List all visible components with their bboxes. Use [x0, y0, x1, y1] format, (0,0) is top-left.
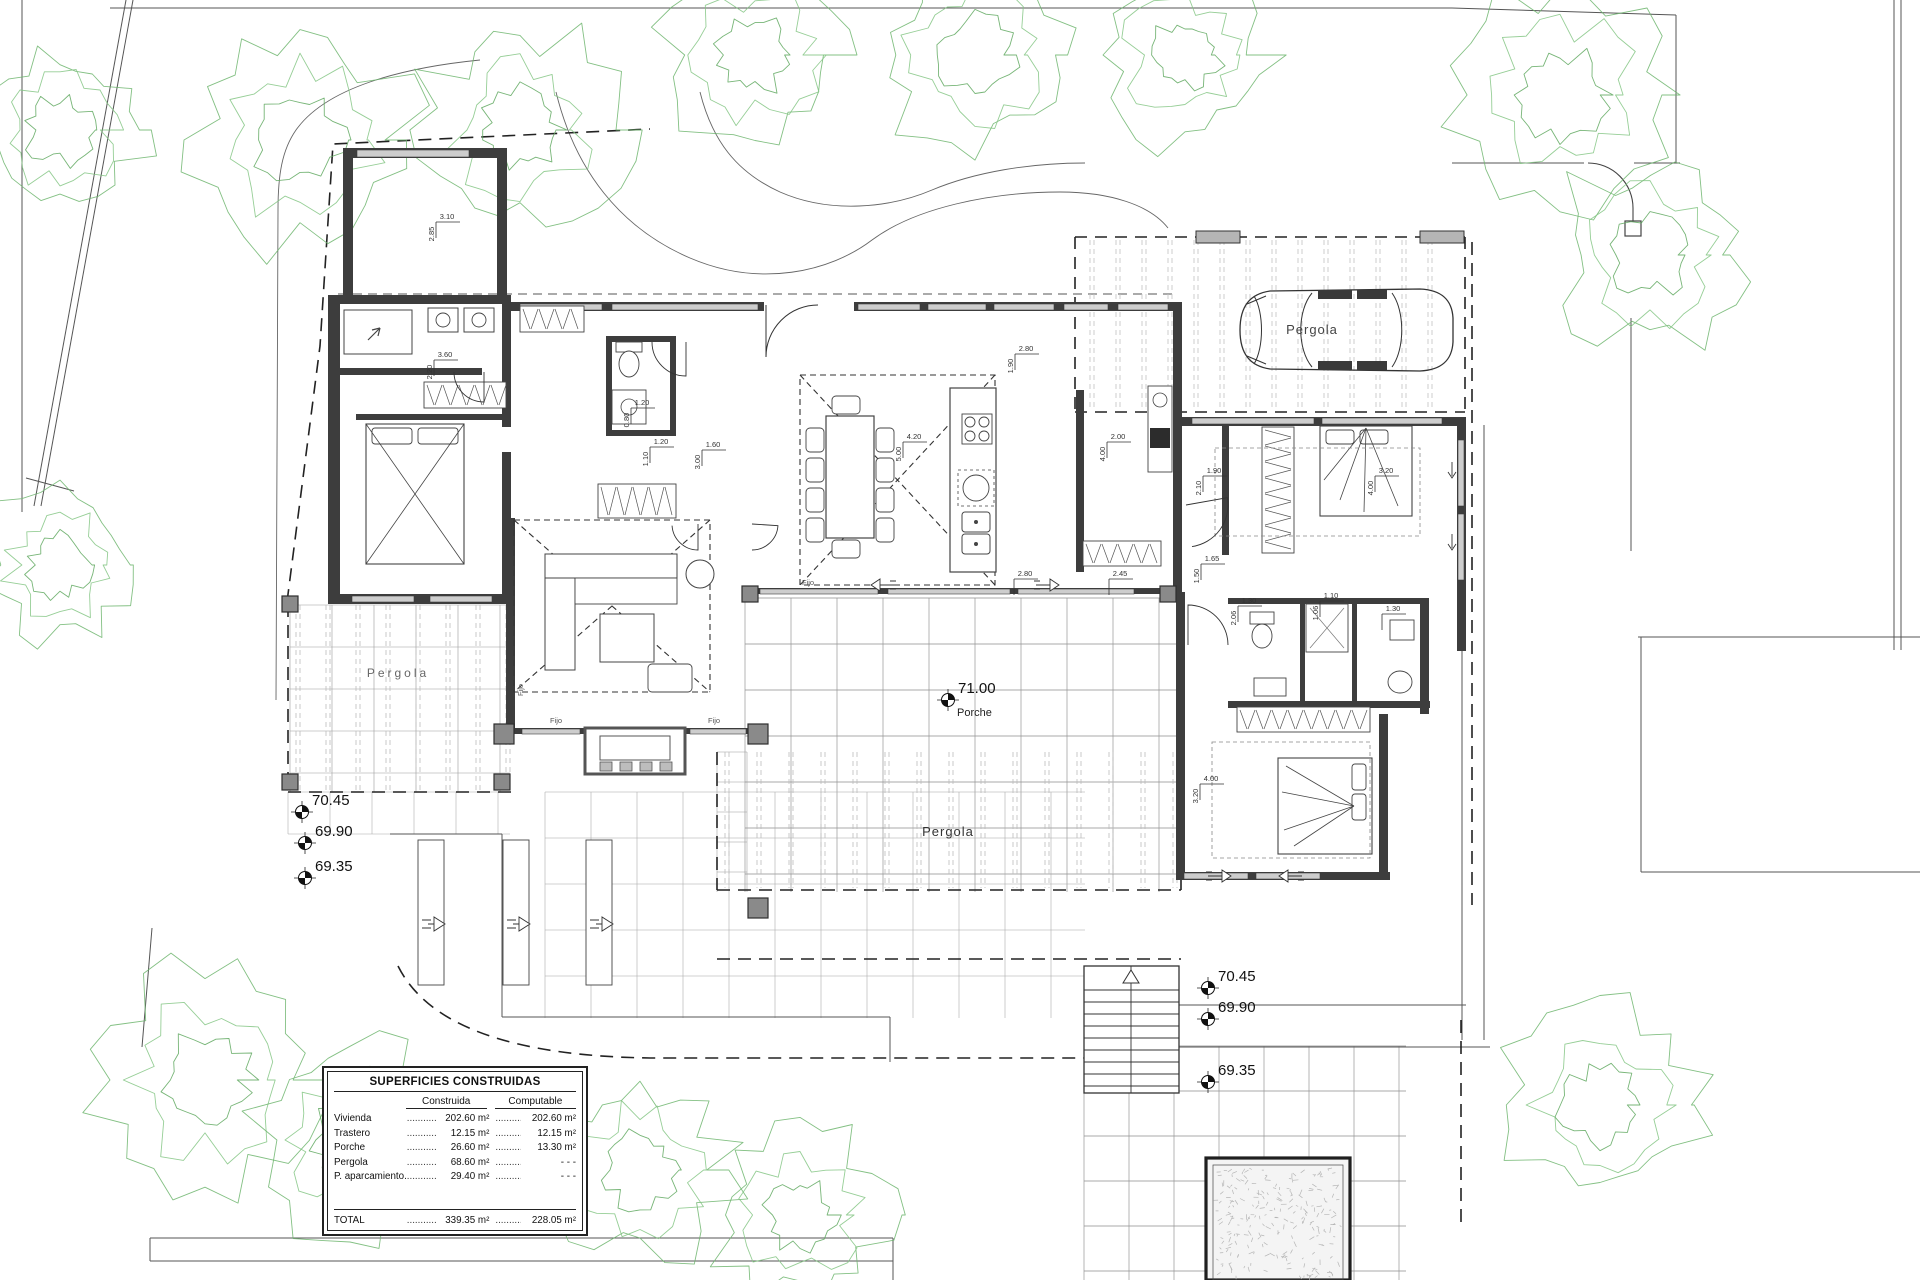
leader-dots: ............	[407, 1214, 437, 1229]
toilet	[1252, 624, 1272, 648]
sofa-side	[545, 578, 575, 670]
carport-pergola	[1075, 231, 1465, 412]
dimension-label: 2.80	[1018, 569, 1033, 578]
gate-swing	[1588, 163, 1633, 221]
table-row: Pergola............68.60 m²............-…	[334, 1156, 576, 1171]
dimension-label: 1.30	[1242, 596, 1257, 605]
fireplace-inner	[600, 736, 670, 760]
tree-sketch	[254, 98, 351, 181]
total-label: TOTAL	[334, 1214, 407, 1229]
wall	[1173, 302, 1182, 594]
wall	[1420, 598, 1429, 714]
table-cell: - - -	[521, 1156, 576, 1171]
column-post	[494, 724, 514, 744]
side-table	[686, 560, 714, 588]
tree-sketch	[230, 53, 385, 217]
door-swing	[1188, 605, 1228, 645]
tree-sketch	[25, 529, 95, 600]
dimension-label: 4.20	[907, 432, 922, 441]
dimension-label: 3.00	[693, 455, 702, 470]
dimension-label: 2.06	[1229, 611, 1238, 626]
dimension-label: 1.90	[1207, 466, 1222, 475]
sliding-door-arrow	[880, 581, 896, 589]
boundary-line	[142, 928, 152, 1047]
chair	[806, 488, 824, 512]
setback-dashed-line	[288, 604, 512, 792]
dimension-label: 1.50	[1192, 569, 1201, 584]
table-cell: Porche	[334, 1141, 407, 1156]
setback-dashed-line	[398, 966, 1084, 1058]
areas-table-title: SUPERFICIES CONSTRUIDAS	[334, 1074, 576, 1092]
window	[1118, 304, 1168, 310]
tree-sketch	[651, 0, 857, 145]
pillow	[1326, 430, 1354, 444]
dimension-label: 1.20	[635, 398, 650, 407]
wall	[497, 148, 507, 300]
boundary-line	[41, 0, 133, 506]
tree-sketch	[25, 95, 97, 169]
setback-dashed-line	[287, 129, 650, 602]
dimension-label: 2.20	[425, 365, 434, 380]
site-plan-sheet: PergolaPergolaPergolaFijoFijoFijoFijo70.…	[0, 0, 1920, 1280]
dimension-label: 1.10	[1324, 591, 1339, 600]
chair	[876, 458, 894, 482]
chair	[876, 488, 894, 512]
label-pergola-left: Pergola	[367, 666, 429, 680]
washer	[464, 308, 494, 332]
wall	[1176, 592, 1185, 880]
carport-post	[1420, 231, 1464, 243]
tree-sketch	[0, 46, 157, 201]
dimension-mark	[1201, 564, 1225, 580]
door-swing	[672, 524, 698, 550]
tree-sketch	[601, 1129, 681, 1212]
column-post	[282, 596, 298, 612]
window	[994, 304, 1054, 310]
dimension-label: 4.00	[1098, 447, 1107, 462]
table-cell: 29.40 m²	[436, 1170, 489, 1185]
wall	[328, 295, 511, 304]
wall	[1300, 598, 1305, 702]
sink-drain	[974, 542, 978, 546]
dimension-mark	[436, 222, 460, 238]
window	[928, 304, 986, 310]
fireplace-detail	[640, 762, 652, 771]
door-swing	[652, 342, 686, 376]
dimension-label: 3.10	[440, 212, 455, 221]
table-cell: ............	[407, 1156, 437, 1171]
table-cell: ............	[407, 1127, 437, 1142]
elevation-value: 71.00	[958, 680, 996, 697]
boundary-line	[26, 478, 74, 491]
table-cell: ............	[495, 1156, 521, 1171]
pool	[1206, 1158, 1350, 1280]
sink	[1390, 620, 1414, 640]
door-swing	[752, 524, 778, 550]
dimension-label: 3.20	[1191, 789, 1200, 804]
wardrobe	[1262, 427, 1294, 553]
table-cell: - - -	[521, 1170, 576, 1185]
wall	[343, 148, 353, 300]
car-detail	[1392, 293, 1402, 367]
dimension-mark	[903, 442, 927, 458]
pillow	[1352, 794, 1366, 820]
elevation-value: 70.45	[312, 792, 350, 809]
table-cell: ............	[495, 1127, 521, 1142]
dimension-label: 2.10	[1194, 481, 1203, 496]
elevation-value: 69.90	[1218, 999, 1256, 1016]
window	[612, 304, 758, 310]
tree-sketch	[1590, 181, 1719, 329]
tree-sketch	[1441, 0, 1680, 220]
garden-contour	[700, 92, 1085, 206]
tree-sketch	[890, 0, 1076, 160]
tree-sketch	[1514, 48, 1613, 144]
coffee-table	[600, 614, 654, 662]
window	[760, 589, 878, 594]
dimension-mark	[1107, 442, 1131, 458]
wardrobe	[1237, 707, 1370, 732]
window	[1458, 514, 1464, 580]
areas-table-total-row: TOTAL ............ 339.35 m² ...........…	[334, 1209, 576, 1229]
ramp	[418, 840, 444, 985]
table-cell: 202.60 m²	[436, 1112, 489, 1127]
window-arrow	[1448, 462, 1456, 478]
tree-sketch	[181, 30, 429, 265]
armchair	[648, 664, 692, 692]
table-row: Trastero............12.15 m²............…	[334, 1127, 576, 1142]
fireplace-detail	[600, 762, 612, 771]
dimension-label: 2.85	[427, 227, 436, 242]
tree-sketch	[901, 0, 1039, 128]
sliding-door-arrow	[1034, 581, 1050, 589]
pergola-slat-lines	[296, 605, 510, 790]
table-cell: 26.60 m²	[436, 1141, 489, 1156]
areas-table: SUPERFICIES CONSTRUIDAS Construida Compu…	[322, 1066, 588, 1236]
areas-table-inner: SUPERFICIES CONSTRUIDAS Construida Compu…	[327, 1071, 583, 1231]
dimension-label: 1.06	[1311, 606, 1320, 621]
chair	[832, 396, 860, 414]
car-window	[1357, 290, 1387, 299]
wall	[1222, 425, 1229, 555]
fireplace-detail	[620, 762, 632, 771]
window	[1458, 440, 1464, 506]
fixed-window-label: Fijo	[802, 578, 814, 587]
fireplace-detail	[660, 762, 672, 771]
col-header-computable: Computable	[495, 1096, 576, 1109]
table-cell: 13.30 m²	[521, 1141, 576, 1156]
table-cell: 202.60 m²	[521, 1112, 576, 1127]
table-cell: ............	[495, 1170, 521, 1185]
dimension-label: 1.65	[1205, 554, 1220, 563]
tree-sketch	[1501, 993, 1714, 1186]
toilet	[619, 351, 639, 377]
car-window	[1318, 290, 1352, 299]
wall	[1379, 714, 1388, 880]
column-post	[1160, 586, 1176, 602]
elevation-value: 70.45	[1218, 968, 1256, 985]
fixed-window-label: Fijo	[708, 716, 720, 725]
dimension-label: 5.00	[894, 447, 903, 462]
toilet-tank	[616, 342, 642, 352]
chair	[876, 428, 894, 452]
sliding-door-arrow	[1222, 870, 1231, 882]
dimension-label: 3.60	[438, 350, 453, 359]
tree-sketch	[83, 953, 324, 1203]
window	[690, 729, 746, 734]
door-swing	[1186, 498, 1228, 547]
table-row: Porche............26.60 m²............13…	[334, 1141, 576, 1156]
dimension-label: 1.30	[1386, 604, 1401, 613]
window	[352, 596, 414, 602]
chair	[832, 540, 860, 558]
tree-sketch	[410, 23, 642, 227]
sink-drain	[974, 520, 978, 524]
tree-sketch	[762, 1181, 841, 1254]
tree-sketch	[713, 18, 790, 93]
floor-plan-drawing: PergolaPergolaPergolaFijoFijoFijoFijo70.…	[0, 0, 1920, 1280]
sofa-back	[545, 554, 677, 578]
window	[1064, 304, 1108, 310]
trees-layer	[0, 0, 1751, 1280]
car-window	[1357, 361, 1387, 370]
elevation-value: 69.90	[315, 823, 353, 840]
column-post	[282, 774, 298, 790]
tree-sketch	[123, 1002, 275, 1164]
gate-post	[1625, 221, 1641, 236]
window	[1018, 589, 1134, 594]
laundry-counter	[344, 310, 412, 354]
dimension-label: 1.20	[654, 437, 669, 446]
wardrobe	[1083, 541, 1161, 566]
tree-sketch	[739, 1152, 865, 1270]
window	[522, 729, 580, 734]
pergola-slat-lines	[725, 752, 1177, 888]
table-cell: Vivienda	[334, 1112, 407, 1127]
tree-sketch	[1610, 212, 1688, 295]
dimension-mark	[650, 447, 674, 463]
table-cell: P. aparcamiento...	[334, 1170, 407, 1185]
dimension-label: 4.00	[1204, 774, 1219, 783]
areas-table-rows: Vivienda............202.60 m²...........…	[334, 1112, 576, 1206]
table-cell: ............	[407, 1170, 437, 1185]
table-cell: ............	[407, 1112, 437, 1127]
table-cell: ............	[495, 1141, 521, 1156]
wall	[606, 430, 676, 436]
tree-sketch	[1152, 25, 1226, 91]
sofa-seat	[575, 578, 677, 604]
table-row: P. aparcamiento...............29.40 m²..…	[334, 1170, 576, 1185]
tree-sketch	[688, 0, 827, 126]
table-cell: ............	[495, 1112, 521, 1127]
site-boundaries	[22, 0, 1920, 1280]
total-construida: 339.35 m²	[436, 1214, 489, 1229]
column-post	[748, 724, 768, 744]
dimension-label: 3.20	[1379, 466, 1394, 475]
tree-sketch	[1103, 0, 1286, 157]
wall	[1352, 598, 1357, 702]
dimension-mark	[702, 450, 726, 466]
sliding-door-arrow	[1279, 870, 1288, 882]
ramp	[586, 840, 612, 985]
window-arrow	[1448, 534, 1456, 550]
wall	[340, 368, 482, 375]
label-pergola-carport: Pergola	[1286, 322, 1338, 337]
wall	[328, 295, 340, 604]
column-post	[748, 898, 768, 918]
window	[1192, 418, 1314, 424]
wall	[606, 336, 676, 342]
tree-sketch	[447, 54, 592, 202]
window	[858, 304, 920, 310]
car-window	[1318, 361, 1352, 370]
tree-sketch	[1563, 162, 1751, 350]
table-cell: 68.60 m²	[436, 1156, 489, 1171]
table-cell: 12.15 m²	[521, 1127, 576, 1142]
column-post	[742, 586, 758, 602]
chair	[806, 518, 824, 542]
tree-sketch	[1555, 1063, 1640, 1150]
carport-post	[1196, 231, 1240, 243]
chair	[806, 458, 824, 482]
table-row: Vivienda............202.60 m²...........…	[334, 1112, 576, 1127]
carport-dashed-outline	[1075, 237, 1465, 412]
dimension-label: 0.80	[622, 413, 631, 428]
tile-grid	[290, 605, 510, 792]
elevation-value: 69.35	[1218, 1062, 1256, 1079]
areas-table-header: Construida Computable	[334, 1096, 576, 1109]
dimension-label: 4.00	[1366, 481, 1375, 496]
tree-sketch	[937, 9, 1020, 93]
elevation-value: 69.35	[315, 858, 353, 875]
chair	[806, 428, 824, 452]
oven	[1150, 428, 1170, 448]
tree-sketch	[161, 1034, 259, 1125]
table-cell: ............	[407, 1141, 437, 1156]
window	[430, 596, 492, 602]
wall	[606, 336, 612, 434]
dimension-label: 2.45	[1113, 569, 1128, 578]
tile-grid	[745, 598, 1180, 892]
tree-sketch	[1122, 0, 1242, 107]
col-header-construida: Construida	[406, 1096, 487, 1109]
toilet	[1388, 671, 1412, 693]
fixed-window-label: Fijo	[550, 716, 562, 725]
dining-table	[826, 416, 874, 538]
tile-grid	[717, 752, 747, 892]
table-cell: Trastero	[334, 1127, 407, 1142]
dimension-label: 1.60	[706, 440, 721, 449]
window	[1322, 418, 1442, 424]
washer	[428, 308, 458, 332]
garden-contour	[556, 92, 1168, 274]
toilet-tank	[1250, 612, 1274, 624]
vanity	[1254, 678, 1286, 696]
total-computable: 228.05 m²	[521, 1214, 576, 1229]
tree-sketch	[1526, 1041, 1676, 1173]
porche-label: Porche	[957, 707, 992, 719]
window	[357, 150, 469, 157]
label-pergola-bottom: Pergola	[922, 824, 974, 839]
pillow	[1352, 764, 1366, 790]
dimension-mark	[1015, 354, 1039, 370]
wall	[670, 336, 676, 434]
dimension-label: 2.00	[1111, 432, 1126, 441]
chair	[876, 518, 894, 542]
wall	[356, 414, 506, 420]
boundary-line	[34, 0, 126, 506]
leader-dots: ............	[495, 1214, 521, 1229]
window	[888, 589, 1010, 594]
dimension-label: 1.90	[1006, 359, 1015, 374]
dimension-label: 1.10	[641, 452, 650, 467]
car-detail	[1254, 296, 1262, 364]
table-cell: 12.15 m²	[436, 1127, 489, 1142]
column-post	[494, 774, 510, 790]
ramp	[503, 840, 529, 985]
fixed-window-label: Fijo	[516, 684, 525, 696]
tile-grid	[545, 792, 1085, 1018]
table-cell: Pergola	[334, 1156, 407, 1171]
dimension-label: 2.80	[1019, 344, 1034, 353]
tree-sketch	[0, 480, 133, 649]
